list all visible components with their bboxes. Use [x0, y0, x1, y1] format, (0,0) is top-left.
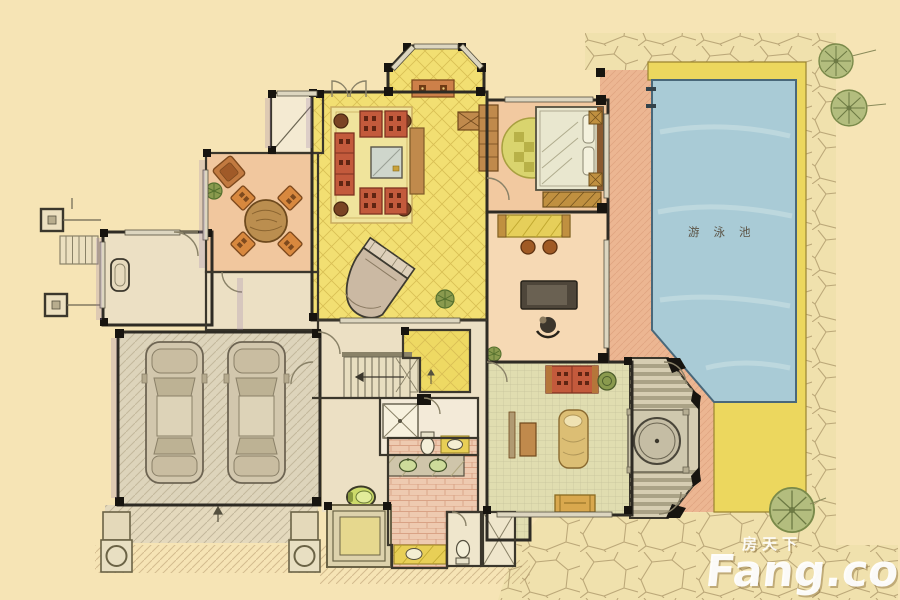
car — [224, 342, 289, 483]
porch-pillar — [45, 294, 67, 316]
dining-table — [245, 200, 287, 242]
plant-icon — [598, 372, 616, 390]
toilet — [421, 432, 434, 455]
corridor-floor — [206, 272, 318, 330]
column-base — [295, 546, 315, 566]
chaise-lounge — [559, 410, 588, 468]
watermark-logo: Fang.com — [703, 546, 900, 597]
bed — [536, 107, 603, 190]
vanity-lower — [394, 545, 446, 564]
tree-icon — [819, 44, 853, 78]
floor-plan-screenshot: 游泳池 — [0, 0, 900, 600]
floor-plan-canvas: 游泳池 — [0, 0, 900, 600]
column-base — [107, 546, 127, 566]
tree-icon — [770, 488, 814, 532]
family-sofa — [546, 366, 598, 393]
double-vanity — [388, 455, 464, 476]
tv-cabinet — [543, 192, 601, 207]
sofa-three-seat — [335, 133, 354, 195]
plant-icon — [487, 347, 501, 361]
pool-label: 游泳池 — [688, 225, 765, 239]
pillow — [583, 147, 594, 175]
stool — [543, 240, 557, 254]
bay-bench — [412, 80, 454, 97]
bench — [555, 495, 595, 512]
tree-icon — [831, 90, 867, 126]
porch-pillar — [41, 209, 63, 231]
stool — [521, 240, 535, 254]
side-table — [520, 423, 536, 456]
plant-icon — [436, 290, 454, 308]
console-table — [410, 128, 424, 194]
car — [142, 342, 207, 483]
desk — [521, 281, 577, 309]
toilet — [456, 541, 470, 565]
entry-steps — [60, 236, 98, 264]
console-strip — [509, 412, 515, 458]
shower-stall — [383, 404, 418, 438]
bottom-porch — [327, 505, 391, 567]
coffee-table — [371, 147, 402, 178]
window-seat — [498, 215, 570, 237]
